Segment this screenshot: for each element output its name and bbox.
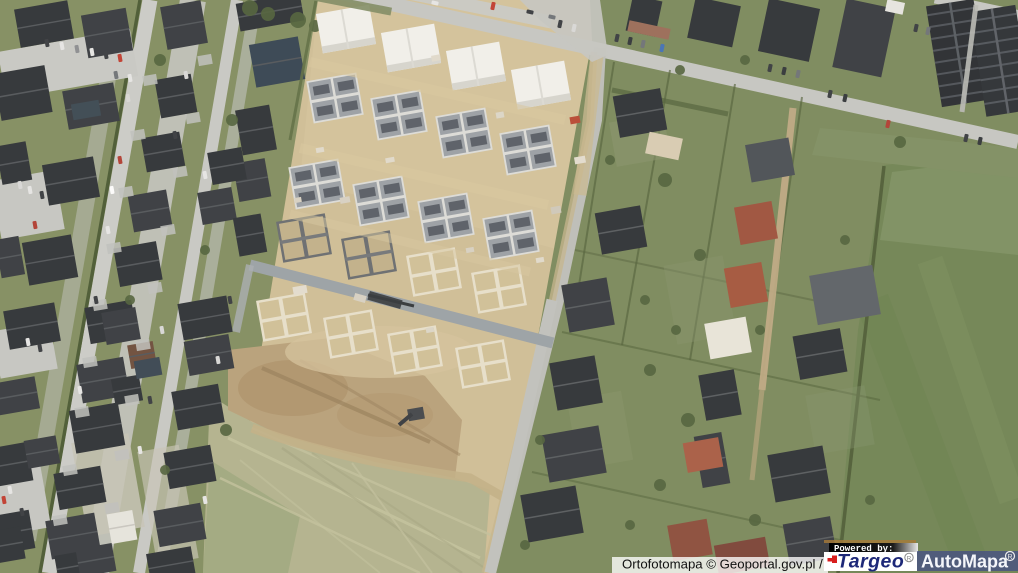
svg-text:R: R [1007, 554, 1012, 561]
svg-text:Ortofotomapa © Geoportal.gov.p: Ortofotomapa © Geoportal.gov.pl / [622, 557, 823, 572]
svg-text:R: R [907, 555, 912, 562]
svg-text:Targeo: Targeo [837, 551, 904, 573]
svg-text:AutoMapa: AutoMapa [921, 552, 1009, 572]
